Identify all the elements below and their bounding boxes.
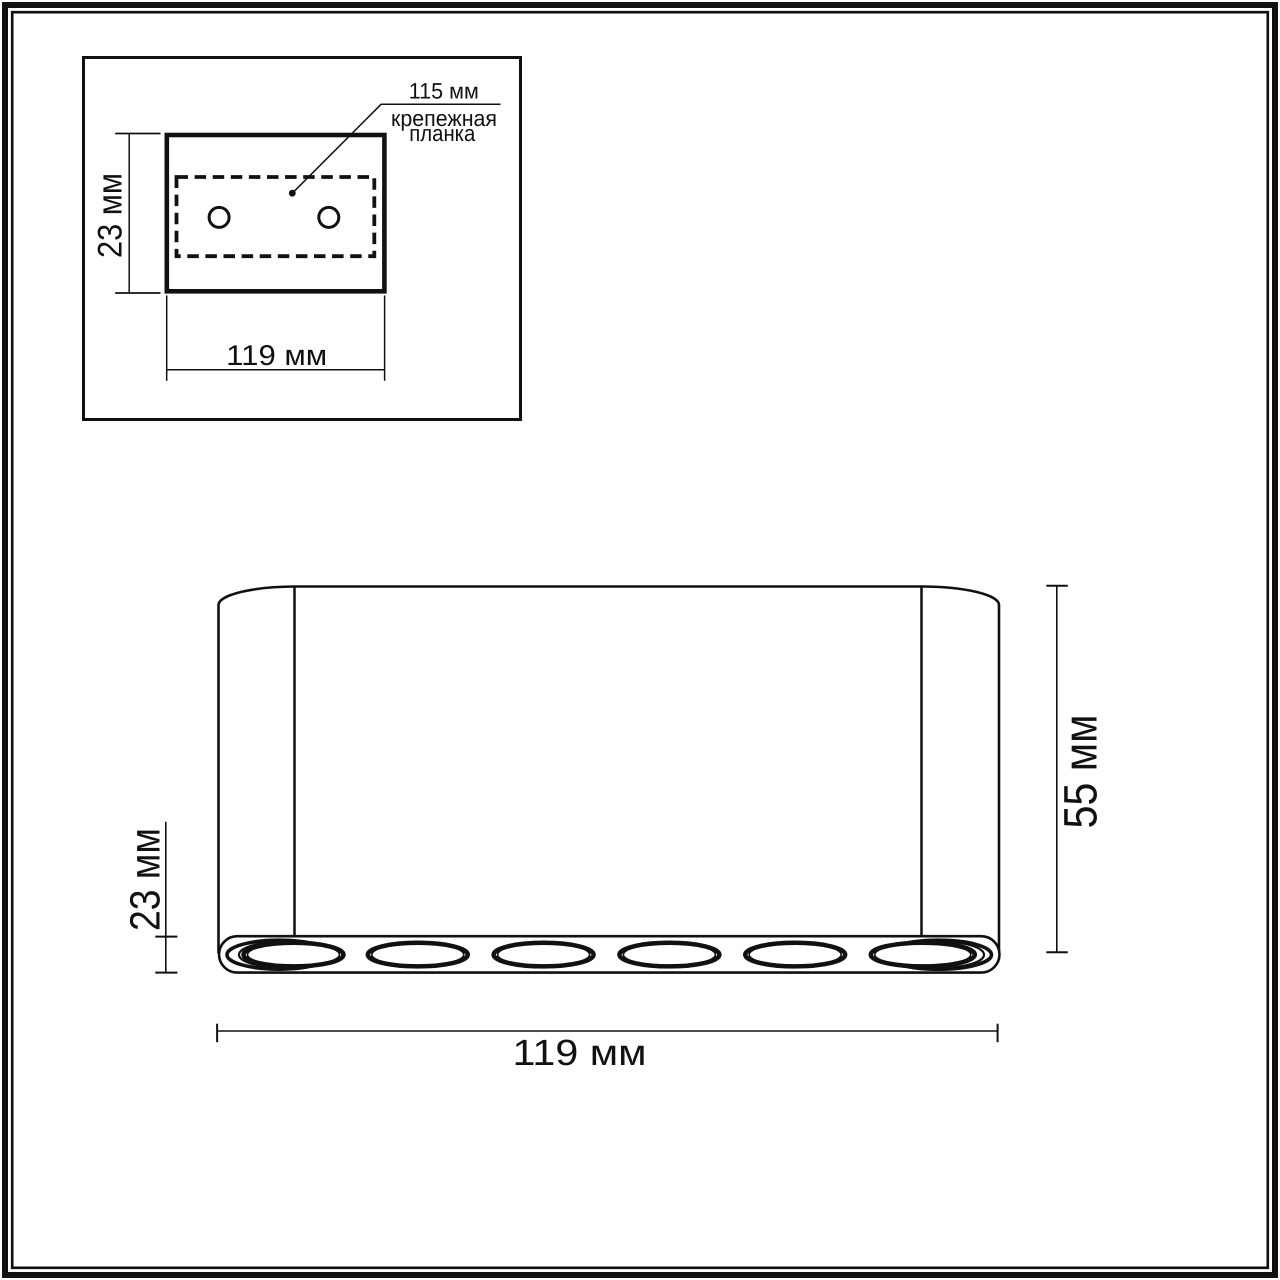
svg-text:23 мм: 23 мм [121, 828, 168, 931]
svg-text:55 мм: 55 мм [1053, 715, 1106, 829]
svg-text:119 мм: 119 мм [226, 340, 327, 372]
svg-text:119 мм: 119 мм [513, 1032, 647, 1073]
svg-text:115 мм: 115 мм [409, 79, 479, 104]
svg-text:23 мм: 23 мм [92, 173, 130, 258]
svg-text:планка: планка [409, 121, 475, 146]
